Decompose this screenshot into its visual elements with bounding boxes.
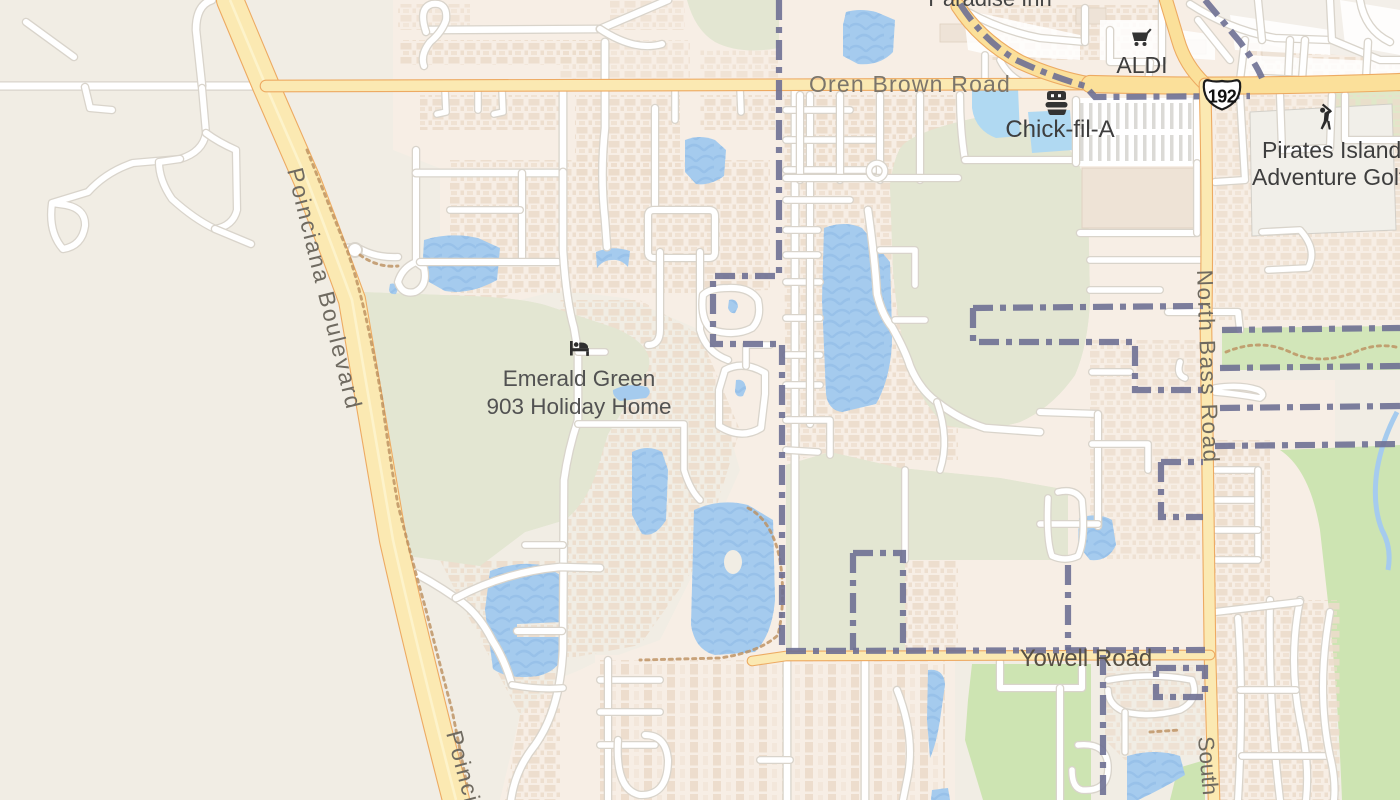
svg-text:South: South <box>1193 735 1223 796</box>
svg-text:Oren Brown Road: Oren Brown Road <box>809 71 1011 97</box>
svg-text:Pirates Island: Pirates Island <box>1262 137 1400 163</box>
svg-text:192: 192 <box>1208 87 1237 107</box>
svg-text:ALDI: ALDI <box>1116 52 1167 78</box>
svg-text:903 Holiday Home: 903 Holiday Home <box>486 394 671 419</box>
svg-text:Chick-fil-A: Chick-fil-A <box>1005 116 1114 143</box>
svg-text:Adventure Golf: Adventure Golf <box>1252 164 1400 190</box>
svg-text:Emerald Green: Emerald Green <box>503 366 656 391</box>
svg-text:Paradise Inn: Paradise Inn <box>928 0 1052 11</box>
svg-text:Yowell Road: Yowell Road <box>1020 645 1153 672</box>
